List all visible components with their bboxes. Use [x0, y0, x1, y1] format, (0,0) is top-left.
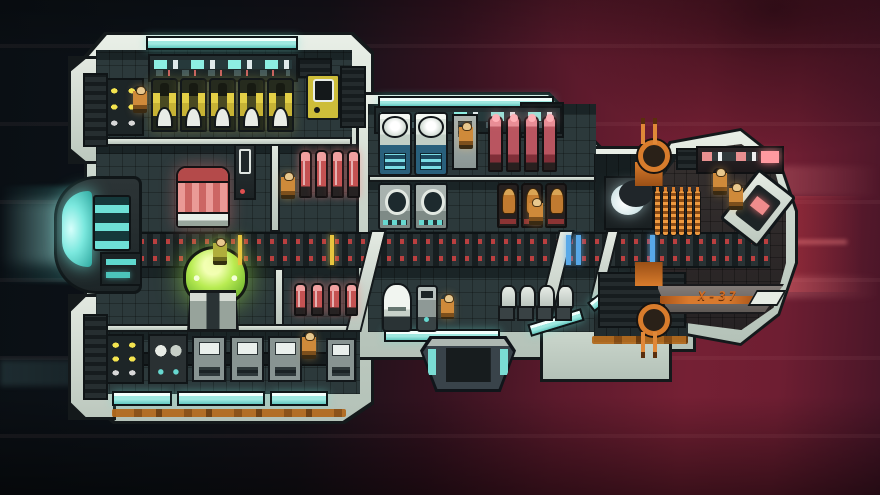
wall-left-lower	[274, 268, 284, 328]
canister-pink-2[interactable]	[506, 116, 521, 172]
canister-red-6[interactable]	[311, 283, 324, 316]
canister-pink-1[interactable]	[488, 116, 503, 172]
coil-stack-1[interactable]	[654, 190, 661, 236]
crew-mid-top[interactable]	[459, 122, 473, 149]
porthole-machine-2[interactable]	[414, 183, 448, 230]
dome-machine-small[interactable]	[382, 283, 412, 332]
corridor-tick-blue-1	[566, 235, 571, 265]
engine-control-panel[interactable]	[100, 252, 142, 286]
coil-stack-3[interactable]	[670, 190, 677, 236]
corridor-tick-yellow-1	[238, 235, 242, 265]
deck-divider-mid	[368, 175, 596, 182]
ship-name-label: X-37	[697, 289, 740, 303]
yellow-pod-2[interactable]	[180, 78, 207, 132]
crew-dome-room[interactable]	[213, 238, 227, 265]
life-support-cylinder-1[interactable]	[378, 112, 412, 176]
canister-red-4[interactable]	[347, 150, 360, 198]
crew-seat-occupied-3[interactable]	[545, 183, 567, 228]
yellow-pod-4[interactable]	[238, 78, 265, 132]
workshop-pod-unit[interactable]	[148, 334, 188, 384]
canister-red-5[interactable]	[294, 283, 307, 316]
crew-workshop[interactable]	[302, 332, 316, 359]
antenna-mast-top[interactable]	[626, 118, 672, 186]
vent-left-right	[340, 66, 366, 128]
canister-red-7[interactable]	[328, 283, 341, 316]
skylight-left	[146, 36, 298, 50]
canister-pink-3[interactable]	[524, 116, 539, 172]
window-bottom-2	[177, 391, 265, 406]
coil-stack-6[interactable]	[694, 190, 701, 236]
game-viewport: X-37	[0, 0, 880, 495]
corridor-tick-blue-2	[576, 235, 581, 265]
coil-stack-5[interactable]	[686, 190, 693, 236]
airlock-hatch[interactable]	[420, 336, 516, 392]
crew-engineer[interactable]	[133, 86, 147, 113]
workshop-light-unit[interactable]	[104, 334, 144, 384]
canister-pink-4[interactable]	[542, 116, 557, 172]
empty-seat-1[interactable]	[498, 285, 515, 321]
canister-red-3[interactable]	[331, 150, 344, 198]
wall-terminal[interactable]	[306, 74, 340, 120]
canister-red-8[interactable]	[345, 283, 358, 316]
rust-stripe-left	[112, 409, 346, 417]
pilot-1[interactable]	[713, 168, 727, 195]
crew-seat-occupied-1[interactable]	[497, 183, 519, 228]
window-bottom-3	[270, 391, 328, 406]
canister-red-1[interactable]	[299, 150, 312, 198]
workshop-screen-unit-4[interactable]	[326, 338, 356, 382]
coil-stack-2[interactable]	[662, 190, 669, 236]
service-robot[interactable]	[416, 285, 438, 332]
crew-mid-standing[interactable]	[529, 198, 543, 225]
yellow-pod-1[interactable]	[151, 78, 178, 132]
porthole-machine-1[interactable]	[378, 183, 412, 230]
workshop-screen-unit-2[interactable]	[230, 336, 264, 382]
corridor-tick-yellow-2	[330, 235, 334, 265]
empty-seat-4[interactable]	[555, 285, 572, 321]
life-support-cylinder-2[interactable]	[414, 112, 448, 176]
empty-seat-3[interactable]	[536, 285, 553, 321]
wall-left-mid	[270, 144, 280, 232]
crew-canister-deck[interactable]	[281, 172, 295, 199]
empty-seat-2[interactable]	[517, 285, 534, 321]
corridor-tick-blue-3	[650, 235, 655, 265]
yellow-pod-5[interactable]	[267, 78, 294, 132]
locker-dark[interactable]	[234, 144, 256, 200]
canister-red-2[interactable]	[315, 150, 328, 198]
reactor-red-cylinder[interactable]	[176, 166, 230, 228]
deck-divider-left	[96, 137, 352, 146]
workshop-screen-unit-1[interactable]	[192, 336, 226, 382]
window-bottom-1	[112, 391, 172, 406]
pilot-2[interactable]	[729, 183, 743, 210]
yellow-pod-3[interactable]	[209, 78, 236, 132]
pilot-console-wall[interactable]	[696, 146, 784, 174]
crew-mid-lower[interactable]	[441, 294, 454, 319]
coil-stack-4[interactable]	[678, 190, 685, 236]
workshop-screen-unit-3[interactable]	[268, 336, 302, 382]
antenna-mast-bottom[interactable]	[626, 262, 672, 358]
